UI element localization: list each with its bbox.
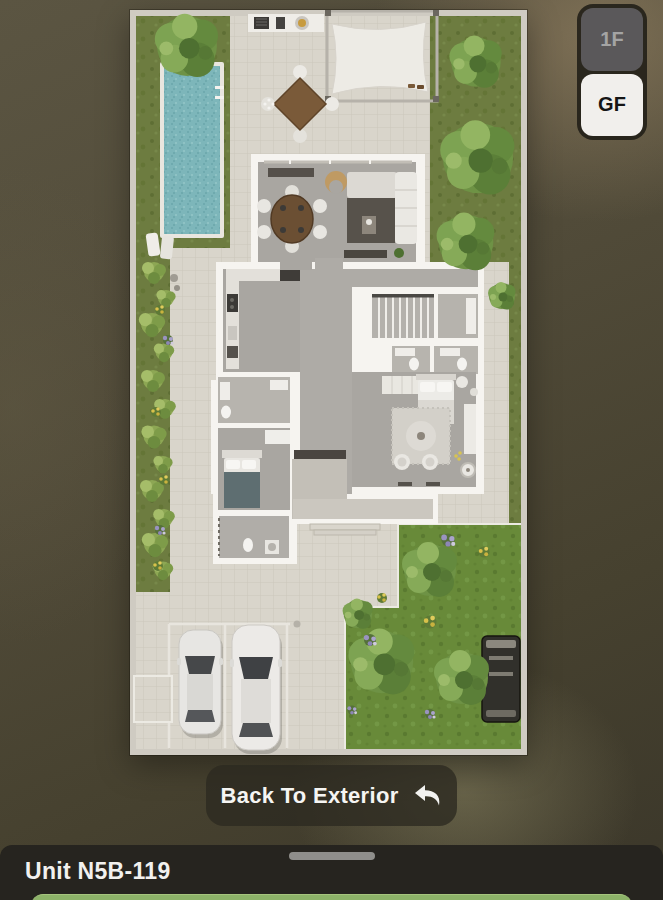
back-button-label: Back To Exterior (220, 783, 398, 809)
bathroom-2 (218, 377, 290, 423)
drag-handle[interactable] (289, 852, 375, 860)
bottom-cta-button[interactable] (31, 894, 632, 900)
bedroom-2 (218, 428, 290, 510)
floor-button-gf[interactable]: GF (581, 74, 643, 137)
kitchen (223, 269, 303, 372)
floor-button-1f[interactable]: 1F (581, 8, 643, 71)
gate-pad (134, 676, 172, 722)
master-bedroom (352, 372, 478, 487)
back-to-exterior-button[interactable]: Back To Exterior (206, 765, 457, 826)
unit-title: Unit N5B-119 (25, 858, 170, 885)
car-small (177, 630, 223, 738)
car-large (230, 625, 282, 754)
floor-selector: 1F GF (577, 4, 647, 140)
stairs (372, 294, 434, 338)
bottom-sheet: Unit N5B-119 (0, 845, 663, 900)
laundry-room (219, 516, 289, 558)
living-dining-room (257, 160, 417, 262)
floorplan-image[interactable] (130, 10, 527, 755)
bbq-counter (248, 14, 324, 32)
swimming-pool (160, 62, 224, 238)
back-arrow-icon (413, 783, 443, 809)
